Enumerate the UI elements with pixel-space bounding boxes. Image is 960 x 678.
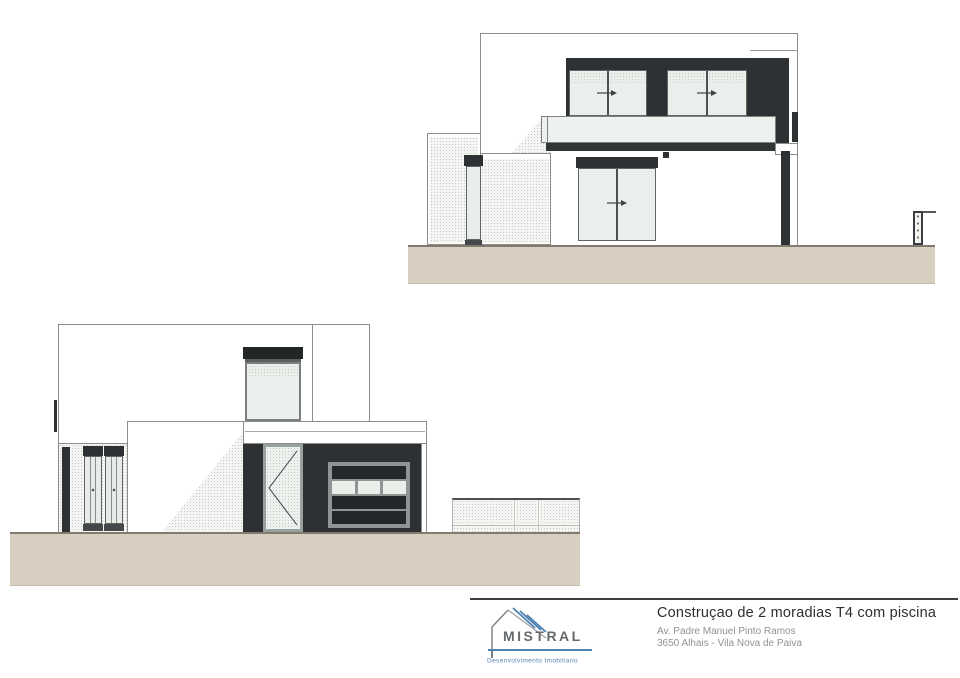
- slide-direction-arrow-icon: [596, 88, 618, 98]
- fascia-step-line: [245, 431, 425, 432]
- folding-window-header: [104, 446, 124, 456]
- rail-end-cap: [547, 117, 548, 142]
- wing-fascia: [243, 421, 427, 444]
- title-rule: [470, 598, 958, 600]
- sliding-door-header: [576, 157, 658, 168]
- corner-column: [781, 151, 790, 245]
- door-swing-icon: [266, 447, 300, 529]
- mistral-logo: MISTRAL Desenvolvimento Imobiliario: [480, 602, 620, 672]
- upper-window: [245, 362, 301, 421]
- address-line-2: 3650 Alhais - Vila Nova de Paiva: [657, 638, 802, 649]
- edge-tick: [54, 400, 57, 432]
- wall-joint-line: [514, 500, 515, 532]
- garage-slat: [332, 466, 406, 479]
- fence-line: [923, 211, 936, 213]
- balcony-slab: [546, 143, 776, 151]
- narrow-window-header: [464, 155, 483, 166]
- entry-door: [263, 444, 303, 532]
- folding-window-sill: [104, 524, 124, 531]
- side-window-edge: [792, 112, 798, 142]
- upper-window-header: [243, 347, 303, 359]
- folding-window-header: [83, 446, 103, 456]
- ground-line: [408, 245, 935, 284]
- narrow-window: [466, 166, 481, 240]
- garden-wall: [452, 498, 580, 532]
- project-title: Construçao de 2 moradias T4 com piscina: [657, 605, 936, 621]
- garage-slat: [332, 496, 406, 509]
- logo-tagline: Desenvolvimento Imobiliario: [487, 657, 578, 664]
- logo-underline: [488, 649, 592, 651]
- balcony-glass-rail: [541, 116, 776, 143]
- header-end-tick: [663, 152, 669, 158]
- garage-window-row: [332, 481, 406, 494]
- porch-column: [62, 447, 70, 532]
- folding-window: [105, 456, 123, 524]
- glass-texture: [248, 365, 298, 377]
- fence-post: [913, 211, 923, 245]
- garage-window: [383, 481, 406, 494]
- drawing-sheet: MISTRAL Desenvolvimento Imobiliario Cons…: [0, 0, 960, 678]
- address-line-1: Av. Padre Manuel Pinto Ramos: [657, 626, 796, 637]
- slide-direction-arrow-icon: [696, 88, 718, 98]
- parapet-line: [750, 50, 798, 51]
- garage-window: [358, 481, 381, 494]
- folding-window: [84, 456, 102, 524]
- folding-window-sill: [83, 524, 103, 531]
- logo-name: MISTRAL: [503, 628, 583, 644]
- wall-joint-line: [453, 525, 579, 526]
- garage-door: [328, 462, 410, 528]
- wall-joint-line: [538, 500, 539, 532]
- corner-strip: [421, 444, 427, 533]
- ground-line: [10, 532, 580, 586]
- garage-slat: [332, 511, 406, 524]
- slide-direction-arrow-icon: [606, 198, 628, 208]
- garage-window: [332, 481, 355, 494]
